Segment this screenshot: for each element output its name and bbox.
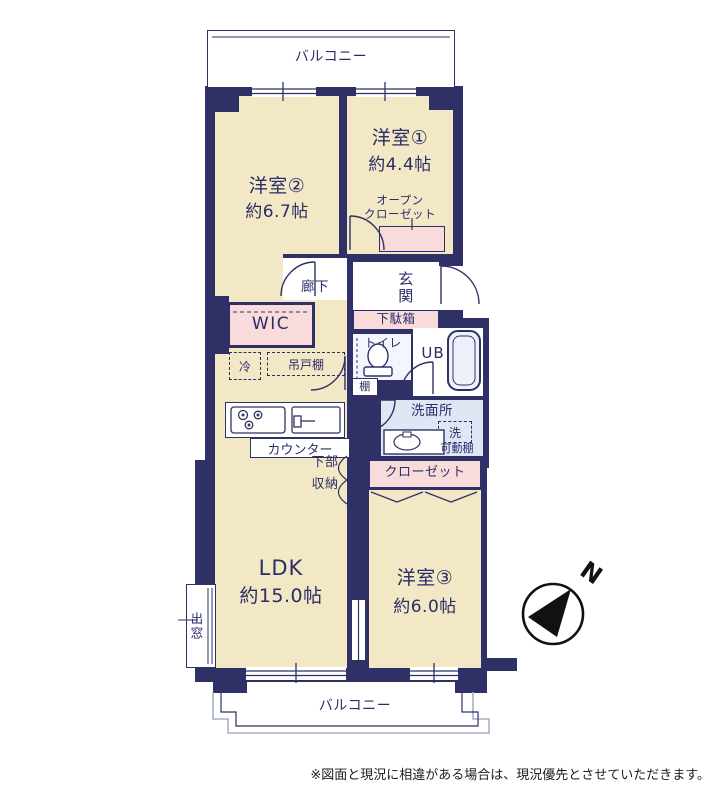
wall-stub-right: [487, 658, 517, 671]
floorplan-canvas: カウンター 冷 吊戸棚 洗: [0, 0, 715, 798]
balcony-top: [207, 30, 455, 88]
closet-box: [369, 460, 481, 488]
refrigerator-label: 冷: [239, 358, 251, 375]
entrance-door-opening: [439, 266, 465, 310]
wic-box: [227, 302, 315, 348]
room2-floor-extension: [215, 254, 283, 302]
room3-floor: [369, 490, 481, 668]
wall-pillar-bottom-right: [455, 680, 487, 693]
washer-dashed-box: 洗: [438, 421, 472, 443]
kitchen-counter: [225, 402, 345, 438]
disclaimer-text: ※図面と現況に相違がある場合は、現況優先とさせていただきます。: [300, 769, 710, 784]
unit-bath-floor: [413, 328, 483, 396]
toilet-floor: [353, 334, 411, 380]
room1-corner-pillar: [429, 96, 453, 110]
balcony-bottom-outline-outer: [213, 692, 489, 733]
compass-north-label: N: [569, 553, 613, 595]
open-closet-box: [379, 226, 445, 252]
counter-label-box: カウンター: [250, 438, 350, 458]
sliding-door-slot: [352, 600, 365, 660]
wall-pillar-bottom-left: [213, 680, 247, 693]
refrigerator-dashed-box: 冷: [229, 352, 261, 380]
washer-label: 洗: [449, 424, 461, 441]
room2-floor: [215, 96, 339, 254]
compass-icon: [523, 584, 583, 644]
counter-label: カウンター: [267, 439, 332, 458]
balcony-bottom-outline-inner: [221, 692, 478, 726]
bay-window-box: [186, 584, 216, 668]
hanging-cupboard-label: 吊戸棚: [288, 356, 324, 373]
shoe-cabinet-box: [353, 310, 439, 330]
entrance-floor: [353, 262, 439, 310]
hanging-cupboard-dashed-box: 吊戸棚: [267, 352, 345, 376]
shelf-box: [352, 378, 378, 396]
room2-corner-pillar: [215, 96, 239, 112]
balcony-bottom-label: バルコニー: [295, 698, 415, 714]
